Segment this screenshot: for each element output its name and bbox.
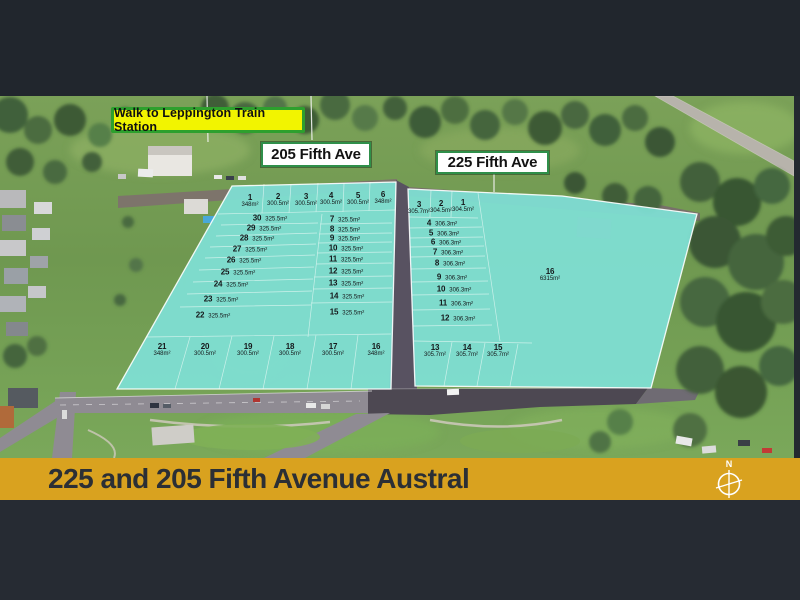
- lot-size: 300.5m²: [320, 200, 342, 207]
- lot-label-225-3: 3305.7m²: [408, 200, 430, 216]
- lot-size: 325.5m²: [259, 227, 281, 233]
- lot-label-205-30: 30325.5m²: [253, 214, 288, 223]
- lot-label-205-19: 19300.5m²: [237, 342, 259, 358]
- lot-label-225-7: 7306.3m²: [433, 248, 463, 257]
- lot-label-225-14: 14305.7m²: [456, 343, 478, 359]
- lot-label-225-6: 6306.3m²: [431, 238, 461, 247]
- lot-label-205-14: 14325.5m²: [330, 292, 365, 301]
- lot-number: 26: [227, 256, 236, 265]
- lot-label-205-22: 22325.5m²: [196, 311, 231, 320]
- lot-label-205-29: 29325.5m²: [247, 224, 282, 233]
- lot-number: 8: [435, 259, 439, 268]
- lot-size: 300.5m²: [279, 351, 301, 358]
- street-label-225-text: 225 Fifth Ave: [448, 154, 538, 171]
- lot-size: 325.5m²: [341, 270, 363, 276]
- lot-label-225-13: 13305.7m²: [424, 343, 446, 359]
- lot-number: 23: [204, 295, 213, 304]
- lot-label-225-1: 1304.5m²: [452, 198, 474, 214]
- lot-number: 9: [437, 273, 441, 282]
- lot-size: 305.7m²: [424, 352, 446, 359]
- lot-label-205-27: 27325.5m²: [233, 245, 268, 254]
- lot-size: 325.5m²: [239, 259, 261, 265]
- lot-number: 28: [240, 234, 249, 243]
- lot-number: 24: [214, 280, 223, 289]
- lot-number: 11: [439, 299, 447, 308]
- lot-size: 6315m²: [540, 276, 560, 283]
- lot-size: 306.3m²: [435, 222, 457, 228]
- lot-number: 22: [196, 311, 205, 320]
- lot-size: 325.5m²: [233, 271, 255, 277]
- lot-number: 12: [441, 314, 450, 323]
- lot-size: 306.3m²: [453, 317, 475, 323]
- lot-label-205-28: 28325.5m²: [240, 234, 275, 243]
- lot-number: 14: [463, 343, 472, 352]
- lot-number: 30: [253, 214, 262, 223]
- lot-number: 3: [417, 200, 421, 209]
- lot-number: 3: [304, 192, 308, 201]
- lot-number: 9: [330, 234, 334, 243]
- lot-label-205-21: 21348m²: [153, 342, 170, 358]
- lot-label-205-18: 18300.5m²: [279, 342, 301, 358]
- lot-size: 325.5m²: [341, 247, 363, 253]
- lot-size: 300.5m²: [194, 351, 216, 358]
- lot-number: 15: [494, 343, 503, 352]
- lot-size: 300.5m²: [347, 200, 369, 207]
- lot-label-205-17: 17300.5m²: [322, 342, 344, 358]
- lot-size: 325.5m²: [208, 314, 230, 320]
- street-label-205: 205 Fifth Ave: [261, 142, 371, 167]
- lot-number: 10: [329, 244, 338, 253]
- lot-label-225-8: 8306.3m²: [435, 259, 465, 268]
- lot-number: 1: [461, 198, 465, 207]
- lot-size: 325.5m²: [341, 282, 363, 288]
- lot-label-205-3: 3300.5m²: [295, 192, 317, 208]
- lot-label-205-12: 12325.5m²: [329, 267, 364, 276]
- lot-size: 305.7m²: [408, 209, 430, 216]
- lot-size: 325.5m²: [341, 258, 363, 264]
- lot-number: 16: [546, 267, 555, 276]
- lot-label-205-23: 23325.5m²: [204, 295, 239, 304]
- lot-number: 16: [372, 342, 381, 351]
- lot-label-205-24: 24325.5m²: [214, 280, 249, 289]
- car: [447, 389, 459, 395]
- lot-size: 348m²: [374, 199, 391, 206]
- lot-number: 5: [356, 191, 360, 200]
- lot-size: 325.5m²: [265, 217, 287, 223]
- lot-number: 18: [286, 342, 295, 351]
- lot-size: 300.5m²: [322, 351, 344, 358]
- caravan: [138, 169, 153, 178]
- lot-size: 300.5m²: [267, 201, 289, 208]
- lot-size: 348m²: [367, 351, 384, 358]
- lot-number: 6: [431, 238, 435, 247]
- lot-label-205-5: 5300.5m²: [347, 191, 369, 207]
- street-label-225: 225 Fifth Ave: [436, 151, 549, 174]
- lot-number: 29: [247, 224, 256, 233]
- compass-icon: N: [711, 459, 747, 499]
- lot-size: 325.5m²: [216, 298, 238, 304]
- lot-number: 15: [330, 308, 339, 317]
- lot-number: 14: [330, 292, 339, 301]
- lot-number: 21: [158, 342, 167, 351]
- lot-size: 306.3m²: [439, 241, 461, 247]
- shed: [151, 425, 194, 446]
- lot-label-205-10: 10325.5m²: [329, 244, 364, 253]
- lot-label-205-2: 2300.5m²: [267, 192, 289, 208]
- lot-label-225-12: 12306.3m²: [441, 314, 476, 323]
- lot-label-225-10: 10306.3m²: [437, 285, 472, 294]
- lot-label-225-5: 5306.3m²: [429, 229, 459, 238]
- lot-label-205-4: 4300.5m²: [320, 191, 342, 207]
- lot-label-225-4: 4306.3m²: [427, 219, 457, 228]
- train-station-label-text: Walk to Leppington Train Station: [114, 106, 302, 134]
- lot-number: 7: [330, 215, 334, 224]
- lot-label-205-6: 6348m²: [374, 190, 391, 206]
- lot-number: 1: [248, 193, 252, 202]
- lot-size: 305.7m²: [487, 352, 509, 359]
- lot-label-205-9: 9325.5m²: [330, 234, 360, 243]
- lot-size: 304.5m²: [430, 208, 452, 215]
- lot-number: 13: [431, 343, 440, 352]
- lot-number: 12: [329, 267, 338, 276]
- lot-label-225-15: 15305.7m²: [487, 343, 509, 359]
- top-border: [0, 0, 800, 96]
- lot-number: 17: [329, 342, 338, 351]
- lot-label-225-2: 2304.5m²: [430, 199, 452, 215]
- lot-label-205-11: 11325.5m²: [329, 255, 363, 264]
- lot-label-205-15: 15325.5m²: [330, 308, 365, 317]
- lot-label-225-9: 9306.3m²: [437, 273, 467, 282]
- lot-size: 306.3m²: [449, 288, 471, 294]
- lot-size: 325.5m²: [338, 237, 360, 243]
- lot-label-225-16: 166315m²: [540, 267, 560, 283]
- flyer-title: 225 and 205 Fifth Avenue Austral: [48, 458, 469, 500]
- lot-number: 2: [439, 199, 443, 208]
- lot-number: 8: [330, 225, 334, 234]
- lot-label-205-16: 16348m²: [367, 342, 384, 358]
- lot-size: 348m²: [153, 351, 170, 358]
- lot-size: 325.5m²: [342, 311, 364, 317]
- lot-number: 13: [329, 279, 338, 288]
- lot-number: 2: [276, 192, 280, 201]
- compass-north-letter: N: [711, 460, 747, 469]
- lot-number: 11: [329, 255, 337, 264]
- lot-size: 306.3m²: [441, 251, 463, 257]
- bottom-border: [0, 500, 800, 600]
- flyer: Walk to Leppington Train Station 205 Fif…: [0, 0, 800, 600]
- lot-size: 306.3m²: [443, 262, 465, 268]
- lot-number: 25: [221, 268, 230, 277]
- lot-number: 7: [433, 248, 437, 257]
- photo-area: Walk to Leppington Train Station 205 Fif…: [0, 96, 794, 458]
- lot-size: 325.5m²: [245, 248, 267, 254]
- lot-number: 10: [437, 285, 446, 294]
- house-with-pool: [184, 199, 208, 214]
- lot-number: 19: [244, 342, 253, 351]
- lot-size: 300.5m²: [237, 351, 259, 358]
- lot-number: 5: [429, 229, 433, 238]
- lot-label-205-7: 7325.5m²: [330, 215, 360, 224]
- lot-size: 306.3m²: [445, 276, 467, 282]
- title-banner: 225 and 205 Fifth Avenue Austral: [0, 458, 800, 500]
- lot-label-205-1: 1348m²: [241, 193, 258, 209]
- aerial-photo: [0, 96, 794, 458]
- lot-number: 4: [329, 191, 333, 200]
- street-label-205-text: 205 Fifth Ave: [271, 146, 361, 163]
- lot-number: 27: [233, 245, 242, 254]
- lot-size: 306.3m²: [451, 302, 473, 308]
- lot-number: 4: [427, 219, 431, 228]
- lot-label-205-20: 20300.5m²: [194, 342, 216, 358]
- lot-size: 300.5m²: [295, 201, 317, 208]
- lot-label-205-13: 13325.5m²: [329, 279, 364, 288]
- lot-size: 325.5m²: [252, 237, 274, 243]
- lot-size: 305.7m²: [456, 352, 478, 359]
- lot-size: 325.5m²: [338, 218, 360, 224]
- lot-label-205-25: 25325.5m²: [221, 268, 256, 277]
- lot-number: 20: [201, 342, 210, 351]
- lot-label-225-11: 11306.3m²: [439, 299, 473, 308]
- lot-label-205-8: 8325.5m²: [330, 225, 360, 234]
- lot-size: 325.5m²: [226, 283, 248, 289]
- lot-label-205-26: 26325.5m²: [227, 256, 262, 265]
- lot-size: 348m²: [241, 202, 258, 209]
- lot-size: 304.5m²: [452, 207, 474, 214]
- lot-number: 6: [381, 190, 385, 199]
- lot-size: 325.5m²: [342, 295, 364, 301]
- train-station-label: Walk to Leppington Train Station: [111, 107, 305, 133]
